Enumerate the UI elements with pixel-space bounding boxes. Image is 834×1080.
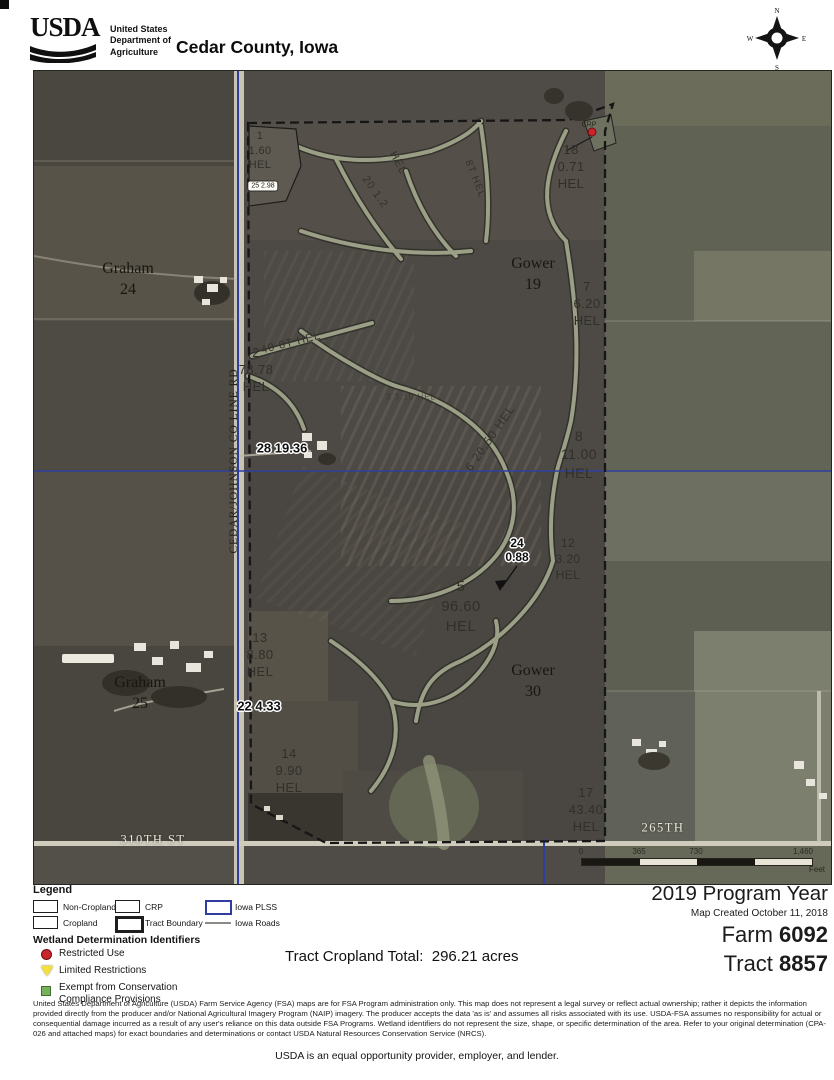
dept-line: Department of xyxy=(110,35,171,46)
tract-total-value: 296.21 acres xyxy=(432,948,519,965)
annotation-3-310: 3 3.10 HEL xyxy=(386,393,436,402)
field-label-14: 149.90HEL xyxy=(276,745,303,796)
waterway xyxy=(248,121,576,844)
fsa-map-page: USDA United States Department of Agricul… xyxy=(0,0,834,1080)
legend-label: CRP xyxy=(145,902,163,912)
field-seams xyxy=(34,161,831,691)
compass-rose-icon: N E S W xyxy=(745,6,809,72)
program-year: 2019 Program Year xyxy=(651,882,828,906)
road-right xyxy=(817,691,821,843)
field-label-17: 1743.40HEL xyxy=(569,784,604,835)
usda-logo: USDA xyxy=(30,12,100,43)
scan-corner-mark xyxy=(0,0,9,9)
field-label-12: 123.20HEL xyxy=(556,536,581,583)
road-label-265th: 265TH xyxy=(642,821,685,836)
compass-e: E xyxy=(802,35,806,43)
exempt-icon xyxy=(41,986,51,996)
tract-total-label: Tract Cropland Total: xyxy=(285,948,423,965)
legend-label: Iowa PLSS xyxy=(235,902,277,912)
restricted-use-marker xyxy=(588,128,596,136)
tract-number: Tract 8857 xyxy=(651,951,828,977)
dept-line: United States xyxy=(110,24,171,35)
field-label-18: 180.71HEL xyxy=(558,141,585,192)
road-label-310th: 310TH ST xyxy=(120,833,185,848)
scale-tick: 0 xyxy=(579,847,583,856)
farm-number: Farm 6092 xyxy=(651,922,828,948)
page-title: Cedar County, Iowa xyxy=(176,37,338,58)
wetland-item: Limited Restrictions xyxy=(33,965,453,979)
field-label-13: 138.80HEL xyxy=(247,629,274,680)
scale-tick: 1,460 xyxy=(793,847,813,856)
place-label-gower-30: Gower30 xyxy=(511,661,555,703)
swatch-crp xyxy=(115,900,140,913)
usda-swoosh-icon xyxy=(30,41,96,63)
field-label-7: 76.20HEL xyxy=(574,278,601,329)
scale-bar: 0 365 730 1,460 Feet xyxy=(571,847,821,873)
outlined-label-25: 25 2.98 xyxy=(247,181,278,192)
scale-bar-segments xyxy=(581,858,813,866)
map-created-date: Map Created October 11, 2018 xyxy=(651,908,828,919)
swatch-iowa-roads xyxy=(205,922,231,924)
outlined-label-24: 240.88 xyxy=(505,536,528,564)
annotation-crp: CRP xyxy=(582,122,597,129)
label-arrow xyxy=(495,566,517,591)
farm-buildings xyxy=(62,88,827,820)
farm-label: Farm xyxy=(722,922,773,947)
wetland-label: Limited Restrictions xyxy=(59,965,146,976)
equal-opportunity-statement: USDA is an equal opportunity provider, e… xyxy=(0,1050,834,1062)
wetland-label: Restricted Use xyxy=(59,948,125,959)
place-label-graham-25: Graham25 xyxy=(114,673,166,715)
outlined-label-22: 22 4.33 xyxy=(237,699,280,714)
restricted-use-icon xyxy=(41,949,52,960)
legend-label: Non-Cropland xyxy=(63,902,116,912)
tract-cropland-total: Tract Cropland Total: 296.21 acres xyxy=(285,948,518,965)
legend-row: Cropland Tract Boundary Iowa Roads xyxy=(33,915,453,931)
legend-label: Iowa Roads xyxy=(235,918,280,928)
wetland-title: Wetland Determination Identifiers xyxy=(33,934,453,946)
tract-value: 8857 xyxy=(779,951,828,976)
field-label-1: 11.60HEL xyxy=(248,129,271,173)
legend-label: Tract Boundary xyxy=(145,918,203,928)
swatch-cropland xyxy=(33,916,58,929)
map-info-block: 2019 Program Year Map Created October 11… xyxy=(651,882,828,977)
place-label-gower-19: Gower19 xyxy=(511,254,555,296)
farm-value: 6092 xyxy=(779,922,828,947)
scale-tick: 365 xyxy=(632,847,645,856)
scale-tick: 730 xyxy=(689,847,702,856)
swatch-iowa-plss xyxy=(205,900,232,915)
field-label-8: 811.00HEL xyxy=(561,427,597,482)
swatch-noncropland xyxy=(33,900,58,913)
compass-w: W xyxy=(747,35,754,43)
legend-title: Legend xyxy=(33,884,453,896)
dept-line: Agriculture xyxy=(110,47,171,58)
compass-n: N xyxy=(774,7,779,15)
legend-label: Cropland xyxy=(63,918,98,928)
place-label-graham-24: Graham24 xyxy=(102,259,154,301)
field-label-5: 596.60HEL xyxy=(441,577,481,636)
aerial-map: 11.60HEL 180.71HEL 76.20HEL 278.78HEL 81… xyxy=(33,70,832,885)
department-text: United States Department of Agriculture xyxy=(110,24,171,58)
legend: Legend Non-Cropland CRP Iowa PLSS Cropla… xyxy=(33,884,453,1008)
disclaimer-text: United States Department of Agriculture … xyxy=(33,999,828,1039)
road-label-co-line: CEDAR/JOHNSON CO LINE RD xyxy=(228,368,240,553)
legend-row: Non-Cropland CRP Iowa PLSS xyxy=(33,899,453,915)
limited-restrictions-icon xyxy=(41,966,53,976)
swatch-tract-boundary xyxy=(115,916,144,933)
outlined-label-28: 28 19.36 xyxy=(257,441,308,456)
map-overlay xyxy=(34,71,831,884)
scale-unit: Feet xyxy=(809,865,825,874)
tract-label: Tract xyxy=(724,951,773,976)
